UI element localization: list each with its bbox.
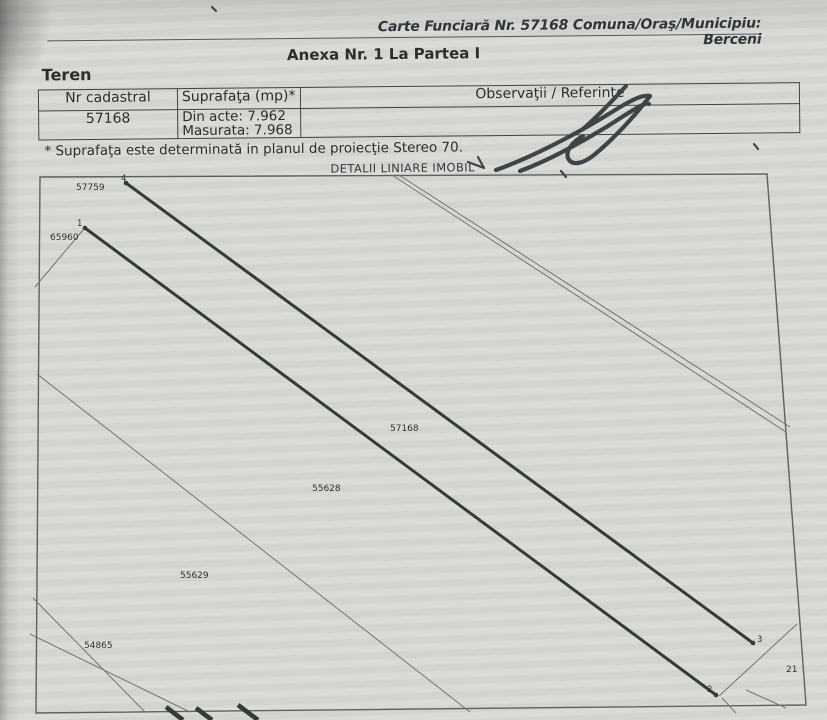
stereo70-footnote: * Suprafaţa este determinată in planul d… xyxy=(44,139,463,159)
anexa-title: Anexa Nr. 1 La Partea I xyxy=(238,44,528,65)
col-header-nr-cadastral: Nr cadastral xyxy=(38,89,177,111)
section-title: Teren xyxy=(42,65,92,84)
cell-suprafata: Din acte: 7.962 Masurata: 7.968 xyxy=(178,108,301,138)
map-title: DETALII LINIARE IMOBIL xyxy=(303,160,503,176)
cell-observatii xyxy=(301,104,800,138)
table-row: 57168 Din acte: 7.962 Masurata: 7.968 xyxy=(39,104,800,140)
teren-table: Nr cadastral Suprafaţa (mp)* Observaţii … xyxy=(38,82,800,140)
document-text-layer: Carte Funciară Nr. 57168 Comuna/Oraş/Mun… xyxy=(0,0,827,720)
cell-nr-cadastral: 57168 xyxy=(39,110,178,140)
suprafata-masurata: Masurata: 7.968 xyxy=(182,123,296,138)
scanned-document-page: Carte Funciară Nr. 57168 Comuna/Oraş/Mun… xyxy=(0,0,827,720)
col-header-suprafata: Suprafaţa (mp)* xyxy=(177,87,300,109)
